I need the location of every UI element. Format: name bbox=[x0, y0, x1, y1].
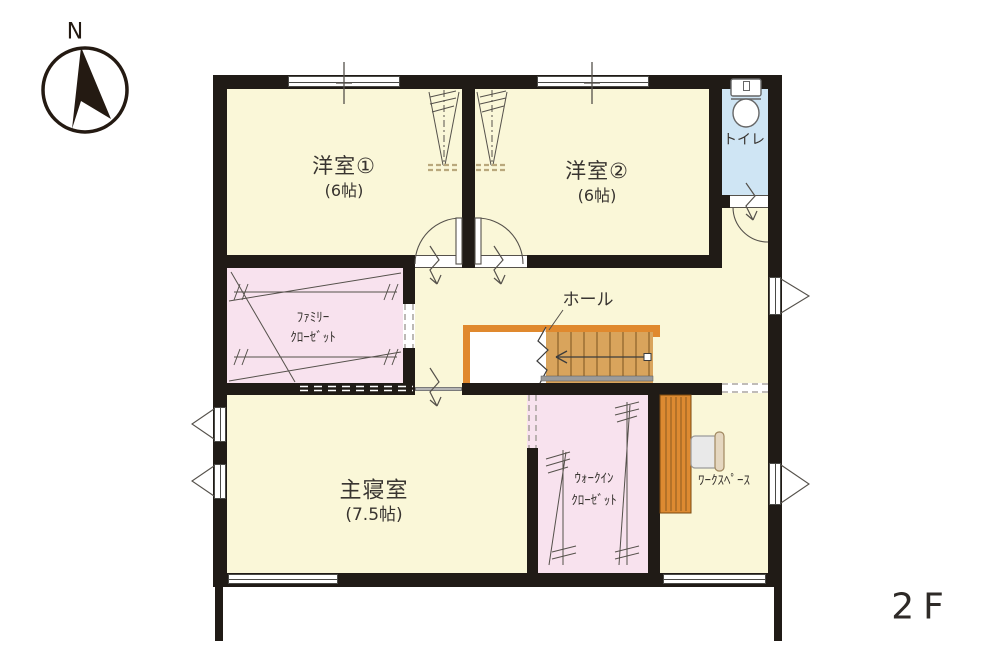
label-western1-size: (6帖) bbox=[325, 182, 364, 200]
label-hall: ホール bbox=[563, 291, 614, 311]
label-master-name: 主寝室 bbox=[339, 478, 408, 503]
label-family-closet-line1: ﾌｧﾐﾘｰ bbox=[297, 312, 330, 327]
plan-symbol-overlay bbox=[0, 0, 1000, 667]
desk bbox=[660, 395, 691, 513]
label-toilet: トイレ bbox=[723, 132, 765, 148]
label-western1-name: 洋室① bbox=[312, 154, 376, 178]
label-master-size: (7.5帖) bbox=[345, 506, 402, 526]
label-family-closet-line2: ｸﾛｰｾﾞｯﾄ bbox=[290, 332, 336, 347]
door-western1 bbox=[415, 218, 462, 264]
floor-plan-page: N 洋室① (6帖) 洋室② (6帖) トイレ ﾌｧﾐﾘｰ ｸﾛｰｾﾞｯﾄ ホー… bbox=[0, 0, 1000, 667]
closet-symbol-family bbox=[229, 272, 401, 382]
sliding-door-pocket-dashes bbox=[300, 387, 413, 391]
toilet-icon bbox=[731, 79, 761, 127]
closet-symbol-western1 bbox=[428, 90, 460, 170]
chair bbox=[691, 432, 724, 471]
door-western2 bbox=[475, 218, 523, 264]
compass-icon bbox=[43, 47, 127, 132]
label-western2-name: 洋室② bbox=[565, 159, 629, 183]
door-toilet bbox=[733, 207, 768, 242]
closet-symbol-western2 bbox=[476, 90, 508, 170]
floor-label: 2F bbox=[891, 586, 953, 627]
label-workspace: ﾜｰｸｽﾍﾟｰｽ bbox=[698, 475, 750, 490]
window-tick-marks bbox=[336, 62, 600, 104]
label-wic-line2: ｸﾛｰｾﾞｯﾄ bbox=[571, 495, 617, 510]
stairs bbox=[463, 325, 660, 383]
label-wic-line1: ｳｫｰｸｲﾝ bbox=[575, 473, 614, 488]
label-western2-size: (6帖) bbox=[578, 187, 617, 205]
compass-north-label: N bbox=[67, 19, 83, 44]
stair-handrail bbox=[541, 376, 653, 381]
